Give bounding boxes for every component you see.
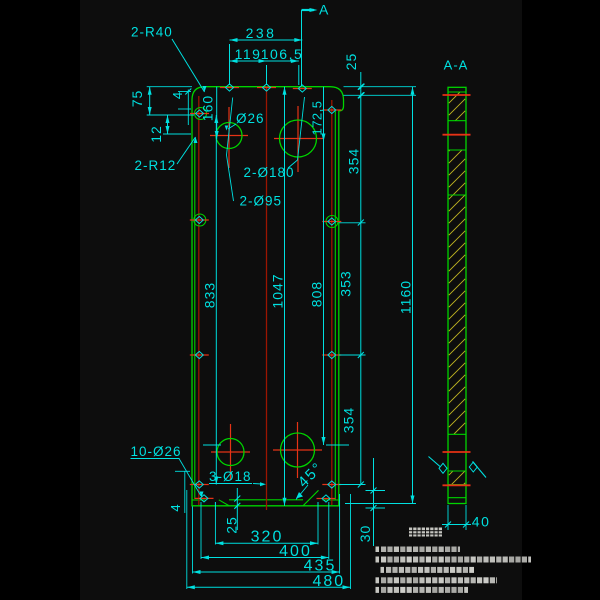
svg-text:106,5: 106,5	[261, 46, 304, 62]
svg-text:25: 25	[224, 516, 240, 534]
svg-text:Ø26: Ø26	[236, 111, 265, 126]
svg-text:2-Ø180: 2-Ø180	[244, 165, 295, 180]
svg-text:833: 833	[201, 282, 217, 308]
svg-text:808: 808	[309, 281, 325, 307]
svg-text:172,5: 172,5	[310, 100, 325, 135]
svg-text:2-R40: 2-R40	[131, 25, 173, 40]
svg-text:A-A: A-A	[444, 58, 469, 73]
svg-text:2-R12: 2-R12	[135, 158, 177, 173]
svg-text:10-Ø26: 10-Ø26	[131, 444, 182, 459]
svg-text:4: 4	[168, 503, 183, 511]
svg-text:353: 353	[338, 270, 354, 296]
svg-text:30: 30	[357, 525, 373, 543]
svg-text:160: 160	[200, 95, 216, 121]
svg-text:2-Ø95: 2-Ø95	[240, 194, 283, 209]
svg-text:75: 75	[129, 90, 145, 108]
svg-text:480: 480	[312, 573, 345, 590]
svg-text:4: 4	[170, 91, 185, 99]
svg-text:119: 119	[235, 46, 262, 62]
svg-text:1047: 1047	[270, 273, 286, 308]
svg-text:12: 12	[148, 125, 164, 143]
svg-text:1160: 1160	[398, 280, 414, 314]
svg-text:25: 25	[343, 53, 359, 71]
svg-text:354: 354	[341, 407, 357, 433]
svg-text:435: 435	[304, 558, 337, 575]
svg-text:238: 238	[246, 25, 277, 41]
svg-text:40: 40	[472, 514, 491, 530]
svg-text:354: 354	[346, 148, 362, 174]
svg-text:A: A	[319, 2, 330, 18]
svg-text:3-Ø18: 3-Ø18	[209, 469, 252, 484]
